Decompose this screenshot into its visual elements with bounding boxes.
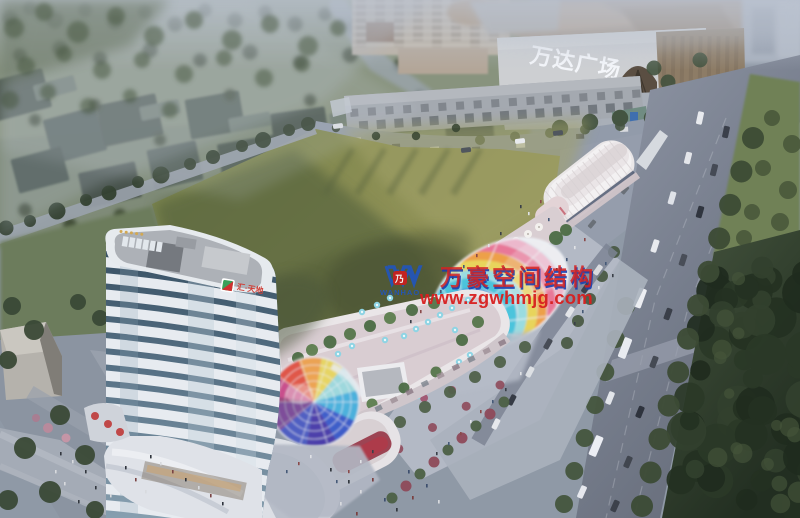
svg-text:乃: 乃	[394, 274, 404, 284]
svg-text:WANHAO: WANHAO	[380, 288, 420, 297]
svg-text:www.zgwhmjg.com: www.zgwhmjg.com	[419, 287, 593, 308]
